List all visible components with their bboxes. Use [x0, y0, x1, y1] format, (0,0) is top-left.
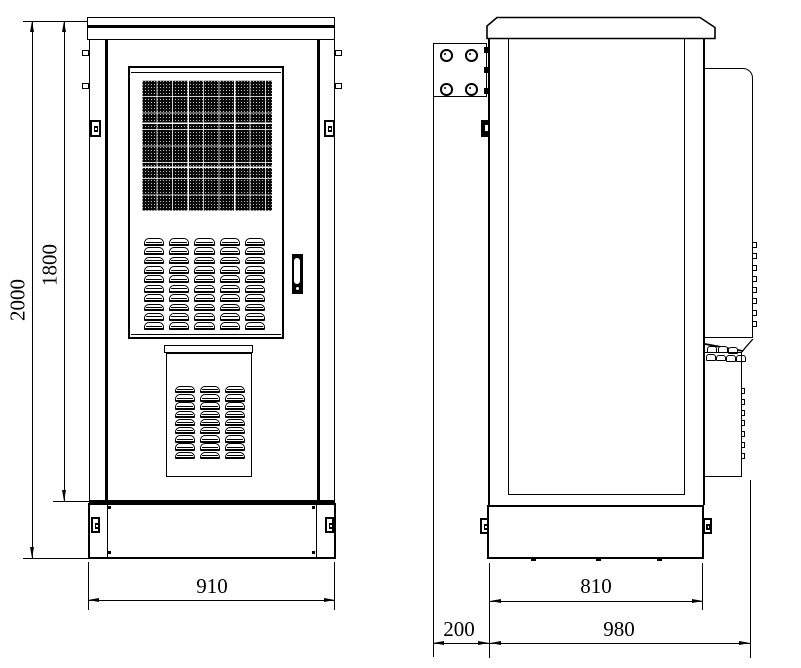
louver-slot: [194, 266, 214, 274]
louver-slot: [245, 247, 265, 255]
base-divider-right: [316, 505, 317, 557]
base-latch-rear: [703, 518, 712, 534]
rear-duct-lower-vents: [741, 388, 746, 459]
louver-slot: [220, 285, 240, 293]
door-latch-right: [324, 120, 335, 137]
technical-drawing-outdoor-cabinet: 2000 1800 910: [0, 0, 801, 668]
mount-reference-line: [433, 97, 434, 657]
louver-slot: [144, 238, 164, 246]
louver-slot: [220, 275, 240, 283]
louver-slot: [245, 322, 265, 330]
louver-slot: [225, 386, 245, 393]
louver-slot: [194, 275, 214, 283]
dim-label-overall-depth: 980: [603, 617, 635, 642]
rear-duct-lower: [704, 352, 742, 477]
arrowhead: [692, 599, 703, 603]
louver-slot: [225, 419, 245, 426]
vent-tab: [741, 442, 746, 448]
dim-label-bracket-offset: 200: [443, 617, 475, 642]
rear-frame-inner-line: [684, 39, 685, 495]
louver-slot: [225, 394, 245, 401]
louver-slot: [169, 275, 189, 283]
louver-slot: [200, 443, 220, 450]
door-edge-left: [105, 39, 108, 503]
base-plinth-side: [487, 505, 704, 559]
ext-line-910-left: [88, 562, 89, 610]
vent-tab: [741, 431, 746, 437]
rear-duct-upper-vents: [752, 242, 757, 327]
front-hinge: [481, 120, 489, 137]
louver-slot: [194, 257, 214, 265]
louver-slot: [144, 322, 164, 330]
louver-slot: [200, 402, 220, 409]
louver-slot: [220, 294, 240, 302]
louver-slot: [194, 313, 214, 321]
base-latch-right: [325, 517, 334, 533]
louver-slot: [144, 294, 164, 302]
base-plinth: [88, 503, 336, 559]
louver-slot: [245, 257, 265, 265]
louver-slot: [144, 285, 164, 293]
louver-slot: [194, 285, 214, 293]
louver-slot: [245, 275, 265, 283]
louver-slot: [245, 285, 265, 293]
arrowhead: [490, 599, 501, 603]
vent-tab: [752, 265, 757, 271]
door-latch-left: [90, 120, 101, 137]
louver-slot: [200, 386, 220, 393]
rear-duct-upper: [704, 68, 753, 338]
door-handle: [292, 254, 303, 294]
dim-label-body-height: 1800: [38, 244, 63, 286]
vent-tab: [752, 298, 757, 304]
base-bolt-dot: [108, 551, 111, 554]
vent-tab: [752, 310, 757, 316]
louver-slot: [194, 238, 214, 246]
side-tab-top-left: [82, 50, 89, 56]
arrowhead: [62, 490, 66, 501]
arrowhead: [478, 641, 489, 645]
ext-line-910-right: [334, 562, 335, 610]
plate-bolt: [440, 49, 453, 62]
side-tab-mid-right: [335, 83, 342, 89]
plate-bolt: [465, 49, 478, 62]
dim-line-980: [490, 643, 750, 644]
mesh-grille: [141, 80, 272, 212]
side-tab-top-right: [335, 50, 342, 56]
louver-slot: [220, 304, 240, 312]
louver-slot: [200, 419, 220, 426]
dim-line-1800: [64, 21, 65, 501]
louver-slot: [220, 247, 240, 255]
vent-tab: [752, 242, 757, 248]
louver-slot: [175, 443, 195, 450]
louver-slot: [225, 452, 245, 459]
louver-slot: [194, 294, 214, 302]
base-anchor-mark: [657, 557, 662, 561]
louver-slot: [169, 304, 189, 312]
dim-line-2000: [32, 21, 33, 558]
base-bolt-dot: [108, 506, 111, 509]
louver-slot: [169, 247, 189, 255]
lower-louver-grid: [175, 386, 245, 459]
louver-slot: [144, 247, 164, 255]
base-bolt-dot: [312, 506, 315, 509]
louver-slot: [169, 238, 189, 246]
louver-slot: [169, 257, 189, 265]
base-latch-front: [480, 518, 489, 534]
arrowhead: [739, 641, 750, 645]
vent-tab: [752, 321, 757, 327]
vent-tab: [741, 388, 746, 394]
louver-slot: [169, 322, 189, 330]
louver-slot: [175, 419, 195, 426]
louver-slot: [225, 411, 245, 418]
roof-cap-side: [484, 16, 717, 40]
louver-slot: [175, 411, 195, 418]
louver-slot: [220, 266, 240, 274]
base-divider-left: [107, 505, 108, 557]
dim-line-910: [88, 600, 335, 601]
ext-line-door-bottom: [53, 501, 90, 502]
lower-panel-header: [164, 345, 253, 353]
louver-slot: [200, 394, 220, 401]
louver-slot: [144, 257, 164, 265]
louver-slot: [220, 257, 240, 265]
roof-cap: [87, 17, 335, 40]
louver-slot: [175, 452, 195, 459]
louver-slot: [194, 247, 214, 255]
arrowhead: [324, 598, 335, 602]
louver-slot: [175, 386, 195, 393]
louver-slot: [175, 394, 195, 401]
louver-slot: [144, 304, 164, 312]
plate-bolt: [440, 83, 453, 96]
base-bolt-dot: [312, 551, 315, 554]
louver-slot: [169, 285, 189, 293]
louver-slot: [245, 266, 265, 274]
louver-slot: [225, 427, 245, 434]
louver-slot: [169, 294, 189, 302]
louver-slot: [245, 313, 265, 321]
base-anchor-mark: [531, 557, 536, 561]
roof-cap-seam: [88, 25, 334, 28]
louver-slot: [200, 435, 220, 442]
louver-slot: [245, 304, 265, 312]
dim-label-front-width: 910: [196, 574, 228, 599]
arrowhead: [62, 21, 66, 32]
louver-slot: [200, 452, 220, 459]
louver-slot: [144, 266, 164, 274]
louver-slot: [220, 238, 240, 246]
dim-line-810: [490, 601, 703, 602]
arrowhead: [88, 598, 99, 602]
louver-slot: [169, 313, 189, 321]
louver-slot: [225, 402, 245, 409]
arrowhead: [30, 21, 34, 32]
dim-label-overall-height: 2000: [6, 279, 31, 321]
ext-line-980-right: [750, 480, 751, 658]
vent-tab: [741, 420, 746, 426]
vent-tab: [741, 453, 746, 459]
upper-louver-grid: [144, 238, 265, 330]
side-tab-mid-left: [82, 83, 89, 89]
vent-tab: [752, 287, 757, 293]
louver-slot: [169, 266, 189, 274]
louver-slot: [225, 443, 245, 450]
side-panel-bottom-line: [508, 494, 684, 495]
louver-slot: [220, 313, 240, 321]
louver-slot: [200, 427, 220, 434]
front-frame-inner-line: [508, 39, 509, 495]
dim-label-base-depth: 810: [580, 574, 612, 599]
door-edge-right: [317, 39, 320, 503]
arrowhead: [490, 641, 501, 645]
vent-tab: [741, 410, 746, 416]
plate-bolt: [465, 83, 478, 96]
louver-slot: [194, 304, 214, 312]
base-anchor-mark: [596, 557, 601, 561]
louver-slot: [175, 402, 195, 409]
vent-panel-inner-top-line: [131, 72, 281, 73]
vent-tab: [752, 276, 757, 282]
louver-slot: [144, 275, 164, 283]
arrowhead: [30, 547, 34, 558]
vent-tab: [741, 399, 746, 405]
louver-slot: [200, 411, 220, 418]
louver-slot: [225, 435, 245, 442]
front-face-line: [488, 39, 490, 505]
louver-slot: [245, 294, 265, 302]
louver-slot: [194, 322, 214, 330]
vent-tab: [752, 253, 757, 259]
ext-line-base-bottom: [23, 558, 88, 559]
base-latch-left: [91, 517, 100, 533]
vent-panel-inner-bottom-line: [131, 334, 281, 335]
louver-slot: [144, 313, 164, 321]
louver-slot: [245, 238, 265, 246]
louver-slot: [175, 427, 195, 434]
louver-slot: [175, 435, 195, 442]
louver-slot: [220, 322, 240, 330]
